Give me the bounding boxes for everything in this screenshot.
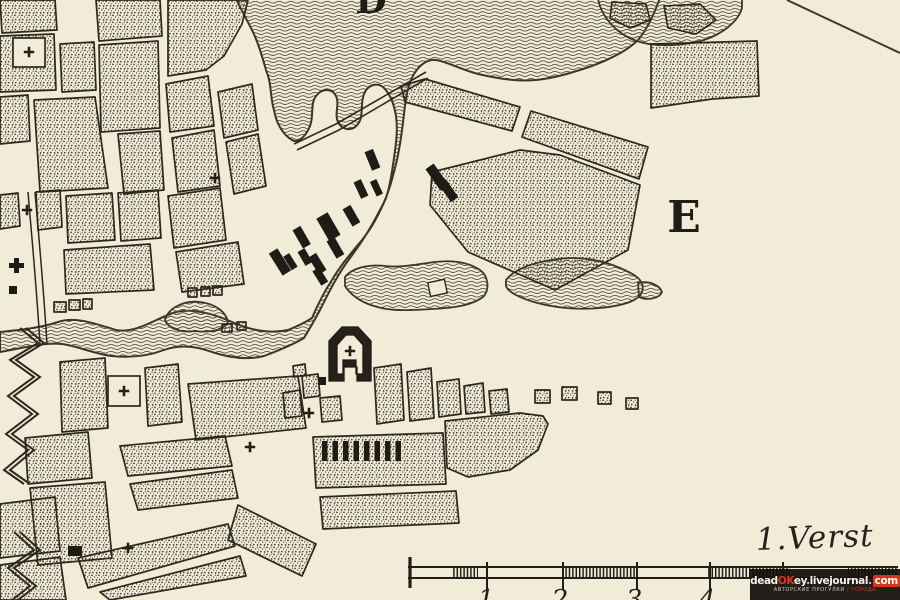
marsh-lobe-west — [345, 261, 487, 310]
scale-number: 3 — [626, 585, 643, 600]
watermark-tagline-left: АВТОРСКИЕ ПРОГУЛКИ — [774, 587, 845, 593]
fortified-monastery — [329, 327, 371, 381]
scale-label-verst: 1.Verst — [755, 518, 874, 558]
watermark-tagline: АВТОРСКИЕ ПРОГУЛКИ / ГОРОДА — [774, 588, 877, 593]
pond-structure — [428, 279, 448, 296]
watermark-part: com — [873, 575, 900, 587]
district-letter-top: D — [355, 0, 386, 22]
watermark-part: livejournal — [810, 575, 868, 587]
watermark-part: . — [868, 575, 872, 587]
boundary-line — [787, 0, 900, 53]
watermark-part: ey — [794, 575, 806, 587]
scale-number: 4 — [698, 585, 716, 600]
watermark-site: deadOKey.livejournal.com — [750, 576, 900, 587]
scale-number: 1 — [478, 585, 495, 600]
watermark-part: OK — [778, 575, 794, 587]
watermark: deadOKey.livejournal.com АВТОРСКИЕ ПРОГУ… — [750, 569, 900, 600]
scale-number: 2 — [551, 585, 569, 600]
watermark-tagline-right: / ГОРОДА — [847, 587, 876, 593]
watermark-part: dead — [750, 575, 778, 587]
black-cross-building — [9, 258, 24, 273]
historic-city-map: D E 1 2 3 4 1.Verst deadOKey.livejournal… — [0, 0, 900, 600]
church-cross-icon — [345, 346, 355, 356]
district-letter-e: E — [667, 192, 701, 243]
map-canvas: D E 1 2 3 4 1.Verst — [0, 0, 900, 600]
